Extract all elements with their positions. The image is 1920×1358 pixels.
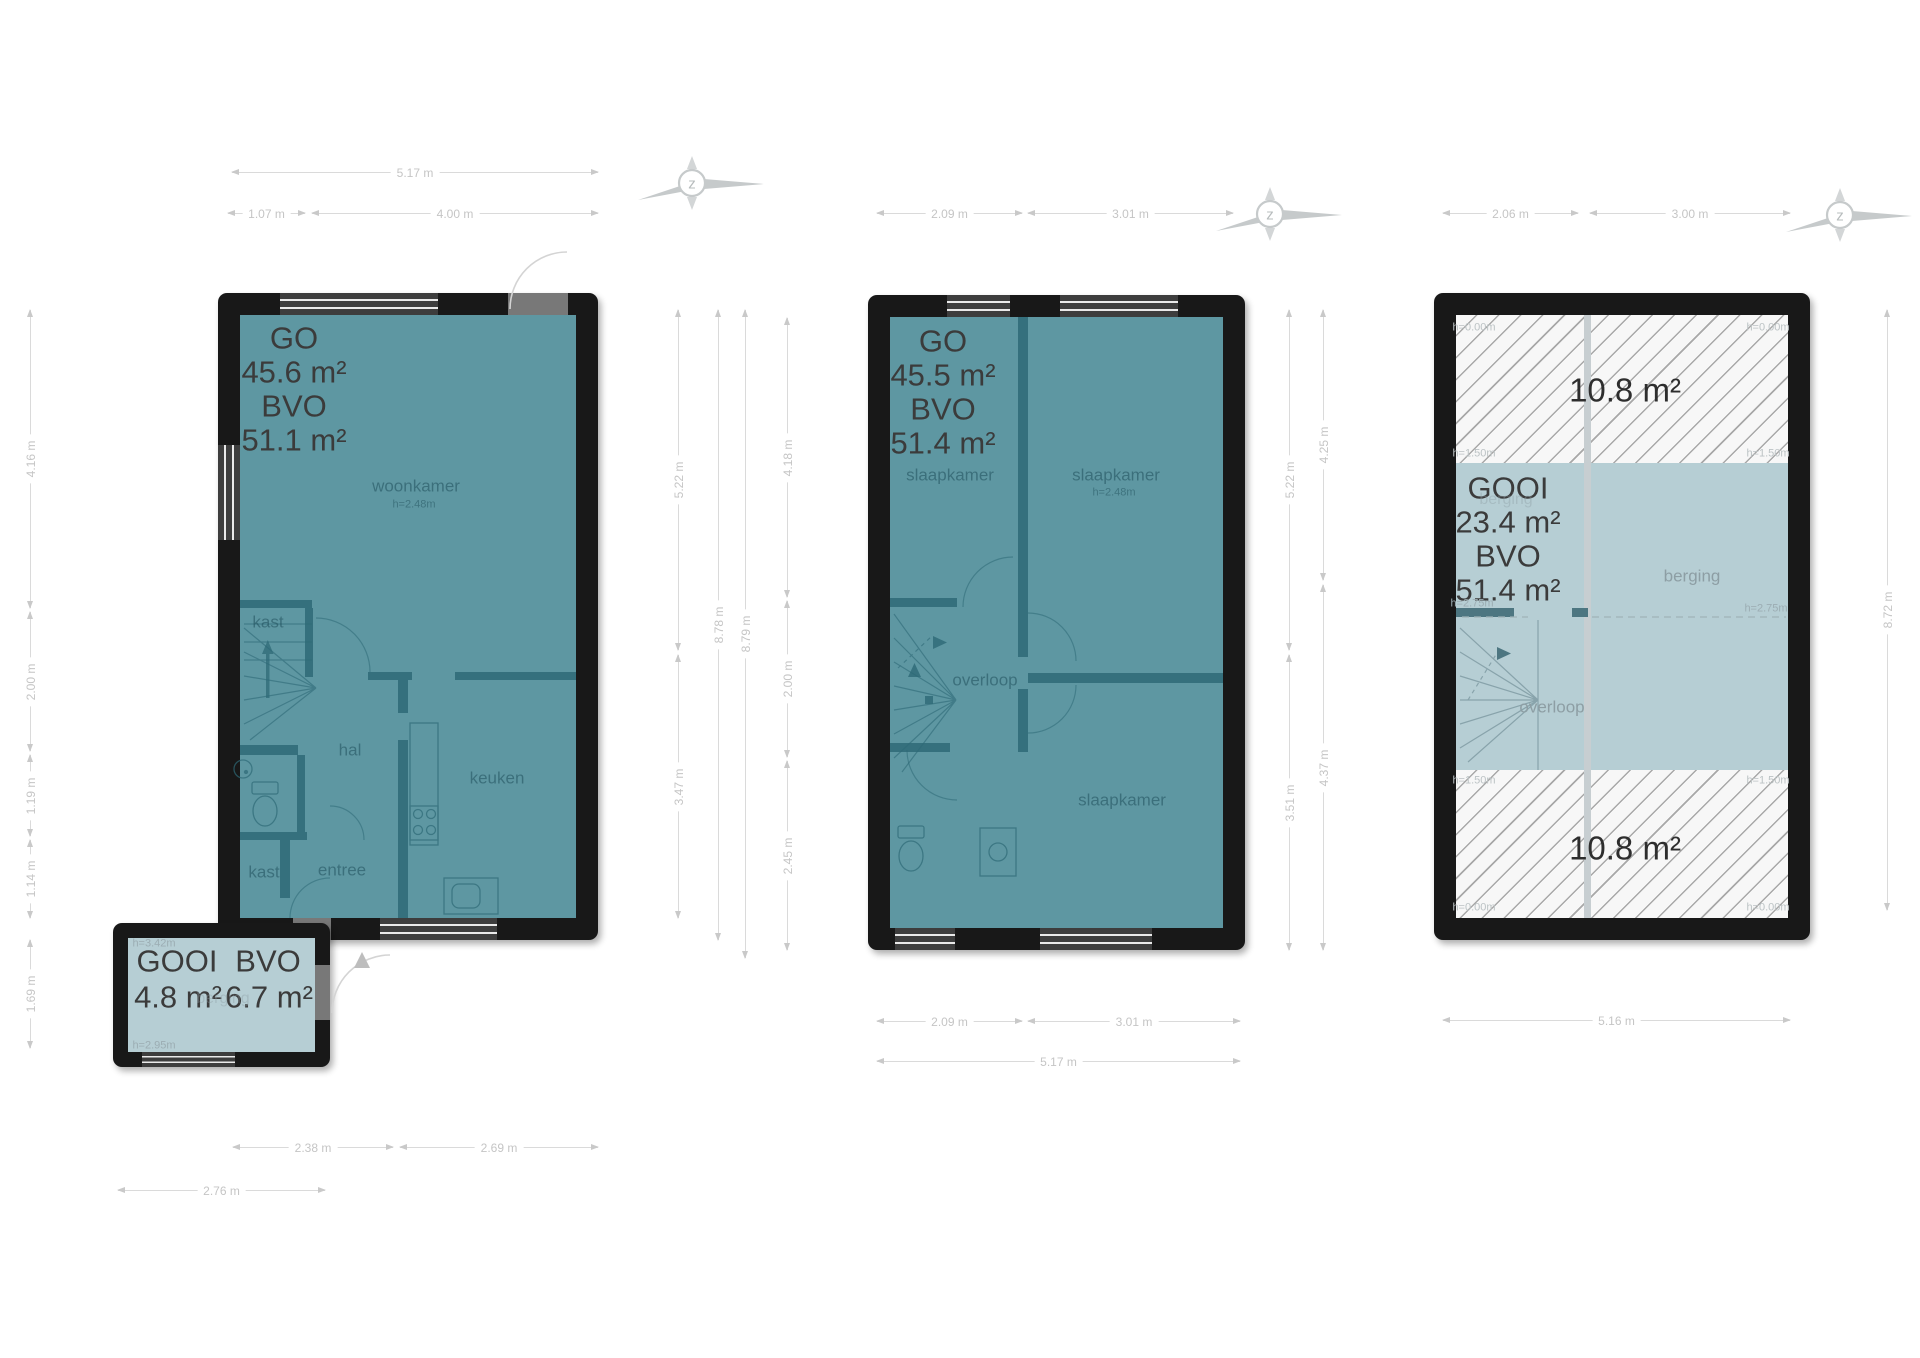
label-h-0.00m: h=0.00m <box>1452 323 1495 334</box>
label-hal: hal <box>339 742 362 759</box>
label-h-2.95m: h=2.95m <box>132 1041 175 1052</box>
label-h-3.42m: h=3.42m <box>132 939 175 950</box>
label-woonkamer: woonkamer <box>372 478 460 495</box>
label-gooi: GOOI <box>137 946 218 977</box>
label-berging: berging <box>196 991 249 1007</box>
label-slaapkamer: slaapkamer <box>1072 467 1160 484</box>
label-berging: berging <box>1664 568 1721 585</box>
labels-layer: GO45.6 m²BVO51.1 m²woonkamerh=2.48mkasth… <box>0 0 1920 1358</box>
label-51.1-m-: 51.1 m² <box>241 425 346 456</box>
label-10.8-m-: 10.8 m² <box>1569 374 1681 407</box>
label-h-0.00m: h=0.00m <box>1452 903 1495 914</box>
label-kast: kast <box>248 864 279 881</box>
label-45.5-m-: 45.5 m² <box>890 360 995 391</box>
label-45.6-m-: 45.6 m² <box>241 357 346 388</box>
label-overloop: overloop <box>1519 699 1584 716</box>
floorplan-canvas: 5.17 m1.07 m4.00 m2.09 m3.01 m2.06 m3.00… <box>0 0 1920 1358</box>
label-h-2.48m: h=2.48m <box>392 500 435 511</box>
label-h-2.75m: h=2.75m <box>1450 599 1493 610</box>
label-h-1.50m: h=1.50m <box>1452 449 1495 460</box>
label-51.4-m-: 51.4 m² <box>890 428 995 459</box>
label-bvo: BVO <box>910 394 975 425</box>
label-h-0.00m: h=0.00m <box>1746 903 1789 914</box>
label-bvo: BVO <box>1475 541 1540 572</box>
label-h-1.50m: h=1.50m <box>1452 776 1495 787</box>
label-kast: kast <box>252 614 283 631</box>
label-h-2.48m: h=2.48m <box>1092 488 1135 499</box>
label-keuken: keuken <box>470 770 525 787</box>
label-23.4-m-: 23.4 m² <box>1455 507 1560 538</box>
label-go: GO <box>919 326 967 357</box>
label-slaapkamer: slaapkamer <box>1078 792 1166 809</box>
label-h-1.50m: h=1.50m <box>1746 449 1789 460</box>
label-overloop: overloop <box>952 672 1017 689</box>
label-h-1.50m: h=1.50m <box>1746 776 1789 787</box>
label-10.8-m-: 10.8 m² <box>1569 832 1681 865</box>
label-go: GO <box>270 323 318 354</box>
label-h-2.75m: h=2.75m <box>1744 604 1787 615</box>
label-bvo: BVO <box>261 391 326 422</box>
label-h-0.00m: h=0.00m <box>1746 323 1789 334</box>
label-bvo: BVO <box>235 946 300 977</box>
label-slaapkamer: slaapkamer <box>906 467 994 484</box>
label-entree: entree <box>318 862 366 879</box>
